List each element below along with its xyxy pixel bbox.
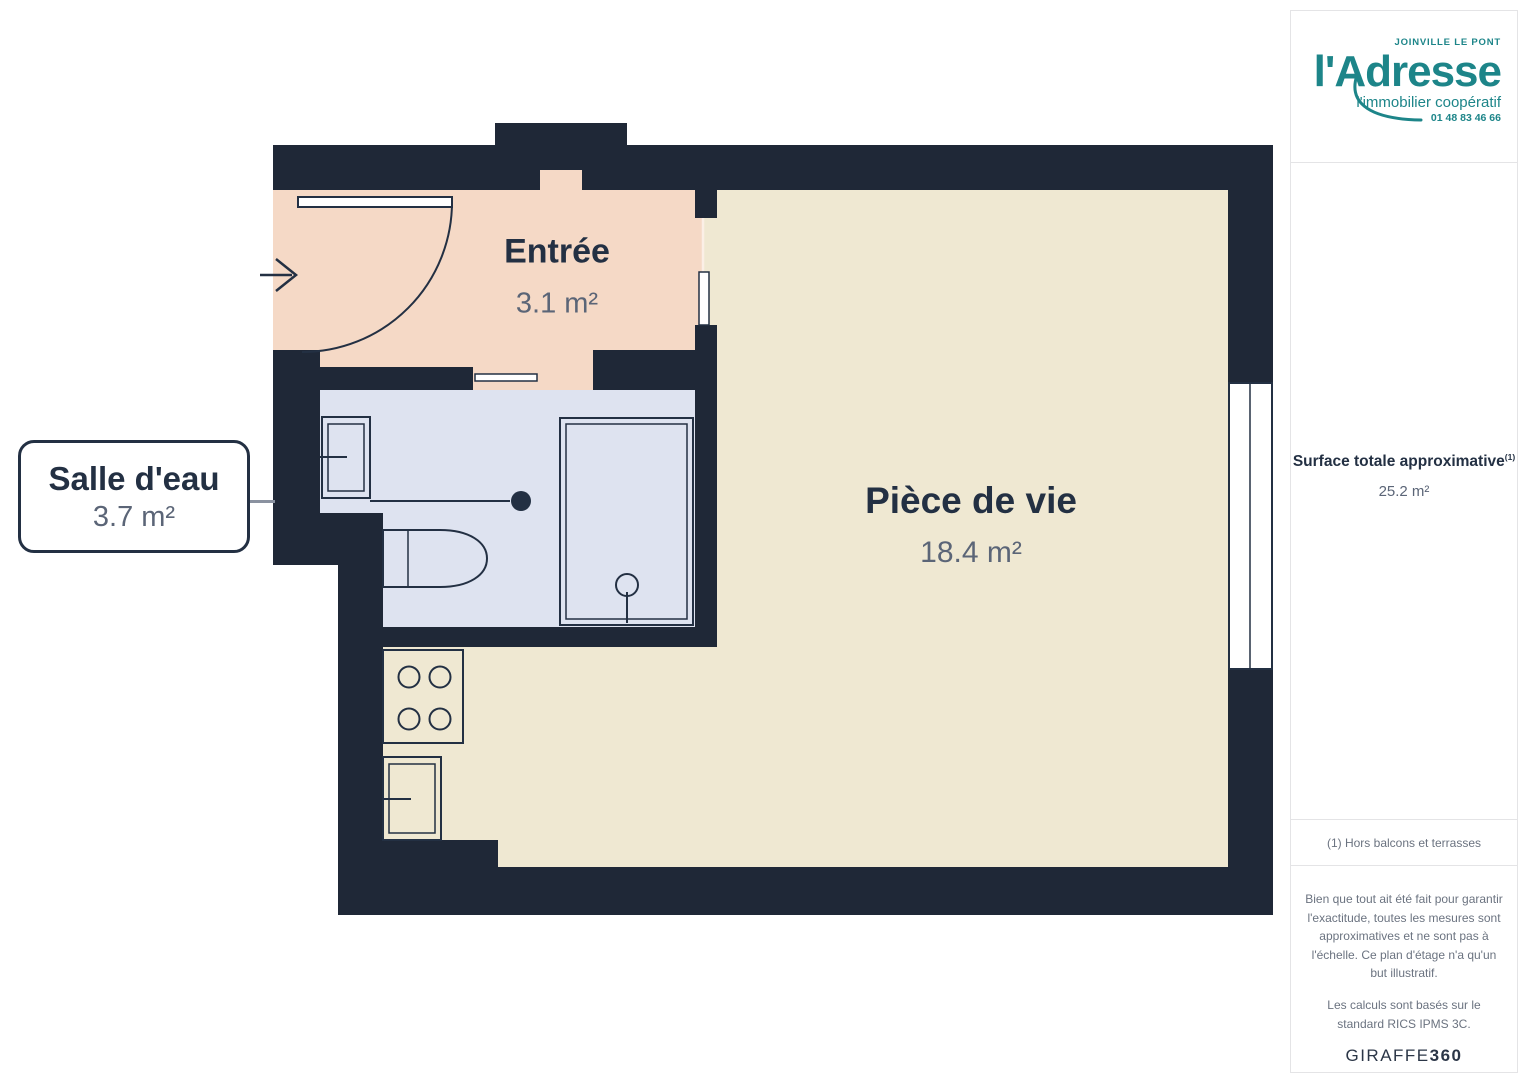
surface-footnote-marker: (1) [1505,452,1515,462]
toilet-bowl [383,530,487,587]
wall-right-upper [1228,190,1273,383]
bathroom-sink [320,417,370,498]
wall-bath-top-left [320,367,473,390]
disclaimer-accuracy: Bien que tout ait été fait pour garantir… [1305,890,1503,983]
toilet [383,530,487,587]
surface-total-value: 25.2 m² [1379,483,1430,500]
wall-bath-top-right [593,350,695,390]
wall-bottom-left-block [338,840,498,915]
disclaimer-card: Bien que tout ait été fait pour garantir… [1291,866,1517,1074]
wall-bath-bottom [383,627,717,647]
cooktop-outline [383,650,463,743]
wall-divider-lower [695,325,717,647]
footnote-text: (1) Hors balcons et terrasses [1327,836,1481,850]
wall-bottom [498,867,1273,915]
bathroom-room-area: 3.7 m² [93,501,175,534]
wall-top [273,145,1273,190]
wall-divider-stub [695,190,717,218]
agency-logo-card: JOINVILLE LE PONT l'Adresse l'immobilier… [1291,11,1517,163]
surface-total-label: Surface totale approximative(1) [1293,452,1515,471]
surface-summary-card: Surface totale approximative(1) 25.2 m² [1291,163,1517,819]
living-room-label: Pièce de vie [865,480,1077,522]
cooktop [383,650,463,743]
entry-wall-niche [540,170,582,190]
window [1229,383,1272,669]
shower [560,418,693,625]
surface-label-text: Surface totale approximative [1293,453,1505,470]
living-room-area: 18.4 m² [920,536,1022,570]
entry-room-label: Entrée [504,233,610,272]
footnote-card: (1) Hors balcons et terrasses [1291,819,1517,866]
logo-swoosh-icon [1329,73,1449,129]
giraffe360-number: 360 [1430,1046,1463,1065]
wall-kitchen-left [338,565,383,840]
wall-bath-left [273,350,320,513]
floor-plan-page: Entrée 3.1 m² Pièce de vie 18.4 m² Salle… [0,0,1528,1080]
info-sidebar: JOINVILLE LE PONT l'Adresse l'immobilier… [1290,10,1518,1073]
giraffe360-name: GIRAFFE [1345,1046,1429,1065]
kitchen-sink [383,757,441,840]
bathroom-callout-box: Salle d'eau 3.7 m² [18,440,250,553]
entry-room-area: 3.1 m² [516,288,598,321]
bathroom-door-threshold [475,374,537,381]
shower-tray [566,424,687,619]
living-door-leaf [699,272,709,325]
wall-top-chimney [495,123,627,147]
disclaimer-standard: Les calculs sont basés sur le standard R… [1305,996,1503,1033]
door-leaf [298,197,452,207]
giraffe360-watermark: GIRAFFE360 [1305,1046,1503,1066]
bathroom-callout-connector [250,500,275,503]
drain-dot [511,491,531,511]
wall-step-block [273,513,383,565]
bathroom-room-label: Salle d'eau [48,460,219,498]
